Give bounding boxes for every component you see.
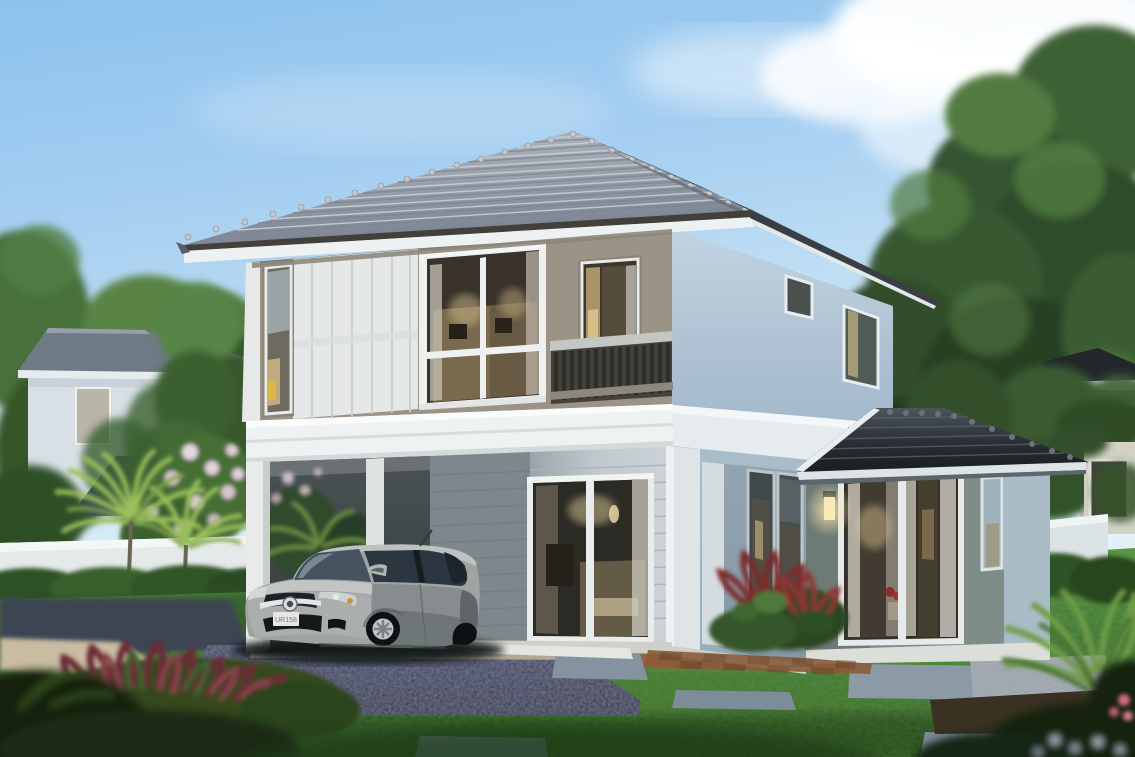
- svg-text:UR158: UR158: [275, 617, 297, 624]
